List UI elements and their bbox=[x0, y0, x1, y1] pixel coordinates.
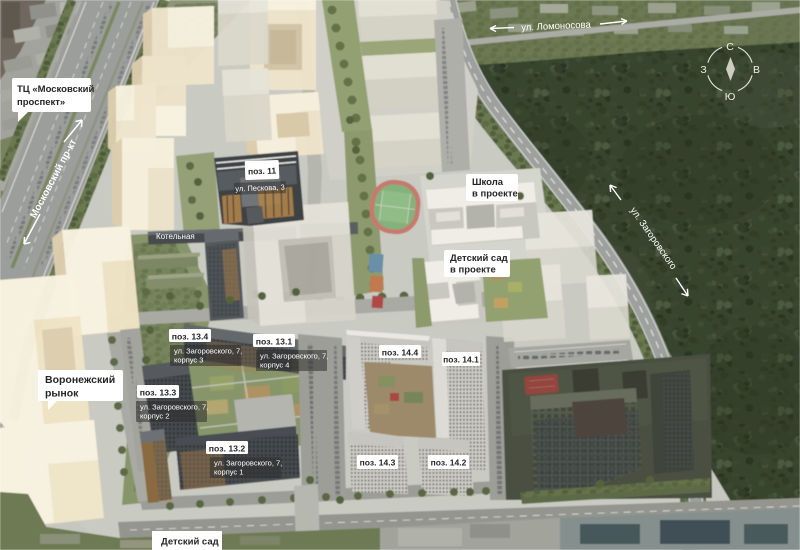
svg-text:Школа: Школа bbox=[472, 177, 504, 188]
svg-text:в проекте: в проекте bbox=[472, 189, 518, 200]
svg-text:рынок: рынок bbox=[45, 388, 79, 400]
svg-text:ул. Загоровского, 7,: ул. Загоровского, 7, bbox=[260, 352, 328, 361]
svg-text:Котельная: Котельная bbox=[156, 232, 195, 241]
svg-text:ул. Загоровского, 7,: ул. Загоровского, 7, bbox=[174, 347, 242, 356]
svg-text:поз. 14.2: поз. 14.2 bbox=[431, 458, 467, 468]
svg-text:Детский сад: Детский сад bbox=[161, 537, 219, 548]
svg-text:поз. 13.1: поз. 13.1 bbox=[256, 337, 293, 347]
svg-text:корпус 4: корпус 4 bbox=[260, 361, 289, 370]
svg-text:Ю: Ю bbox=[725, 91, 736, 103]
svg-text:в проекте: в проекте bbox=[450, 265, 496, 276]
svg-text:С: С bbox=[726, 41, 734, 53]
svg-text:З: З bbox=[700, 64, 706, 76]
svg-text:поз. 13.3: поз. 13.3 bbox=[140, 388, 177, 398]
svg-text:поз. 11: поз. 11 bbox=[248, 166, 277, 177]
svg-text:В: В bbox=[753, 64, 760, 76]
svg-text:проспект»: проспект» bbox=[17, 97, 65, 108]
svg-text:Воронежский: Воронежский bbox=[45, 374, 115, 386]
svg-text:корпус 2: корпус 2 bbox=[140, 412, 169, 421]
svg-text:поз. 14.3: поз. 14.3 bbox=[360, 458, 396, 468]
svg-text:корпус 3: корпус 3 bbox=[174, 356, 203, 365]
svg-text:ТЦ «Московский: ТЦ «Московский bbox=[17, 84, 94, 95]
svg-text:поз. 13.2: поз. 13.2 bbox=[209, 444, 246, 454]
svg-text:ул. Загоровского, 7,: ул. Загоровского, 7, bbox=[214, 459, 282, 468]
svg-text:поз. 13.4: поз. 13.4 bbox=[172, 332, 209, 342]
svg-text:ул. Загоровского, 7,: ул. Загоровского, 7, bbox=[140, 403, 208, 412]
svg-text:ул. Пескова, 3: ул. Пескова, 3 bbox=[235, 183, 285, 194]
svg-text:Детский сад: Детский сад bbox=[450, 253, 508, 264]
svg-text:поз. 14.4: поз. 14.4 bbox=[382, 348, 419, 358]
svg-text:поз. 14.1: поз. 14.1 bbox=[443, 355, 479, 365]
svg-text:корпус 1: корпус 1 bbox=[214, 468, 243, 477]
